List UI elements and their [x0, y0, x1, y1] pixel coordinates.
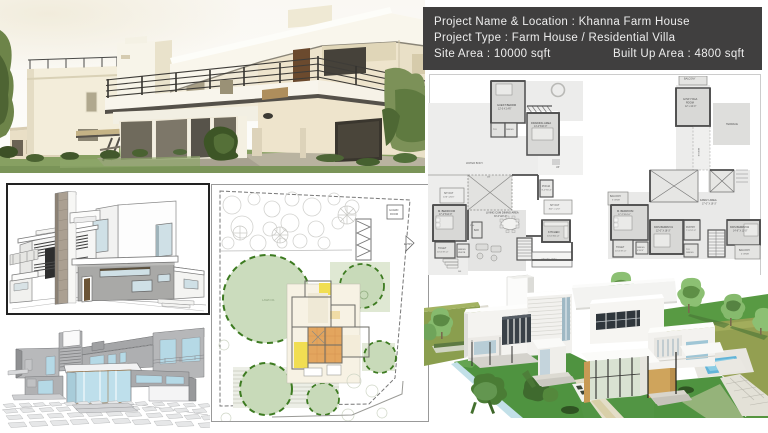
svg-text:14'-8" X 11'-0": 14'-8" X 11'-0": [733, 230, 748, 232]
svg-text:LAWN 01: LAWN 01: [262, 298, 275, 302]
svg-text:DN: DN: [487, 177, 491, 179]
svg-text:17'-2"X14'-0": 17'-2"X14'-0": [439, 214, 452, 216]
svg-text:ROOM: ROOM: [686, 101, 694, 104]
svg-text:SIT OUT: SIT OUT: [444, 192, 454, 195]
svg-text:14'-0"X11'-0": 14'-0"X11'-0": [547, 235, 560, 237]
svg-text:LIVING CUM DINING AREA: LIVING CUM DINING AREA: [486, 211, 519, 215]
svg-text:300" x 12'0": 300" x 12'0": [549, 208, 561, 210]
svg-text:ROOM: ROOM: [390, 212, 398, 216]
svg-text:DRESS: DRESS: [637, 247, 645, 249]
svg-text:BAR: BAR: [474, 229, 479, 232]
svg-text:KITCHEN: KITCHEN: [548, 230, 560, 234]
svg-text:12'-0" X 18'-3": 12'-0" X 18'-3": [656, 230, 671, 232]
svg-text:FAMILY AREA: FAMILY AREA: [700, 198, 717, 202]
svg-text:7'-5"X7'-3": 7'-5"X7'-3": [686, 230, 696, 232]
svg-text:M. BEDROOM: M. BEDROOM: [617, 210, 633, 213]
svg-text:GUEST BEDRM: GUEST BEDRM: [497, 103, 516, 107]
svg-text:TOI: TOI: [493, 129, 497, 131]
svg-text:14'6" x20'0": 14'6" x20'0": [443, 196, 455, 198]
svg-text:12'-0 X 14'6": 12'-0 X 14'6": [498, 107, 512, 110]
svg-text:PANTRY: PANTRY: [686, 226, 696, 229]
svg-text:14'-2"X16'-0": 14'-2"X16'-0": [534, 126, 547, 128]
svg-text:BALCONY: BALCONY: [610, 195, 621, 198]
svg-text:UP: UP: [556, 166, 560, 169]
svg-text:17'-2"X14'-0": 17'-2"X14'-0": [618, 214, 631, 216]
svg-text:ENTRY: ENTRY: [404, 243, 412, 246]
svg-text:DRESS: DRESS: [506, 129, 514, 131]
svg-text:17'-0" X 19'-3": 17'-0" X 19'-3": [702, 203, 717, 205]
svg-text:TERRACE: TERRACE: [726, 123, 738, 126]
svg-text:8'-0"X5'-6": 8'-0"X5'-6": [542, 189, 552, 191]
svg-text:TOILET: TOILET: [616, 246, 625, 249]
svg-text:WATER BODY: WATER BODY: [466, 161, 483, 165]
svg-text:SIT OUT: SIT OUT: [550, 204, 560, 207]
svg-text:GUARD: GUARD: [389, 208, 398, 212]
svg-text:Pwd.: Pwd.: [470, 225, 475, 227]
svg-text:6' WIDE: 6' WIDE: [612, 199, 620, 201]
svg-text:POOJA: POOJA: [542, 185, 551, 188]
svg-text:12' x 10'-0": 12' x 10'-0": [685, 106, 696, 108]
svg-text:BRIDGE: BRIDGE: [697, 148, 699, 157]
svg-text:KIDS BEDRM 01: KIDS BEDRM 01: [654, 226, 674, 229]
svg-text:30'-0"x20'-0": 30'-0"x20'-0": [494, 216, 507, 218]
svg-text:M. BEDROOM: M. BEDROOM: [438, 209, 455, 213]
svg-text:BALCONY: BALCONY: [684, 77, 696, 80]
svg-text:DRAWING AREA: DRAWING AREA: [531, 121, 551, 125]
svg-text:KIDS BEDRM 02: KIDS BEDRM 02: [730, 226, 750, 229]
